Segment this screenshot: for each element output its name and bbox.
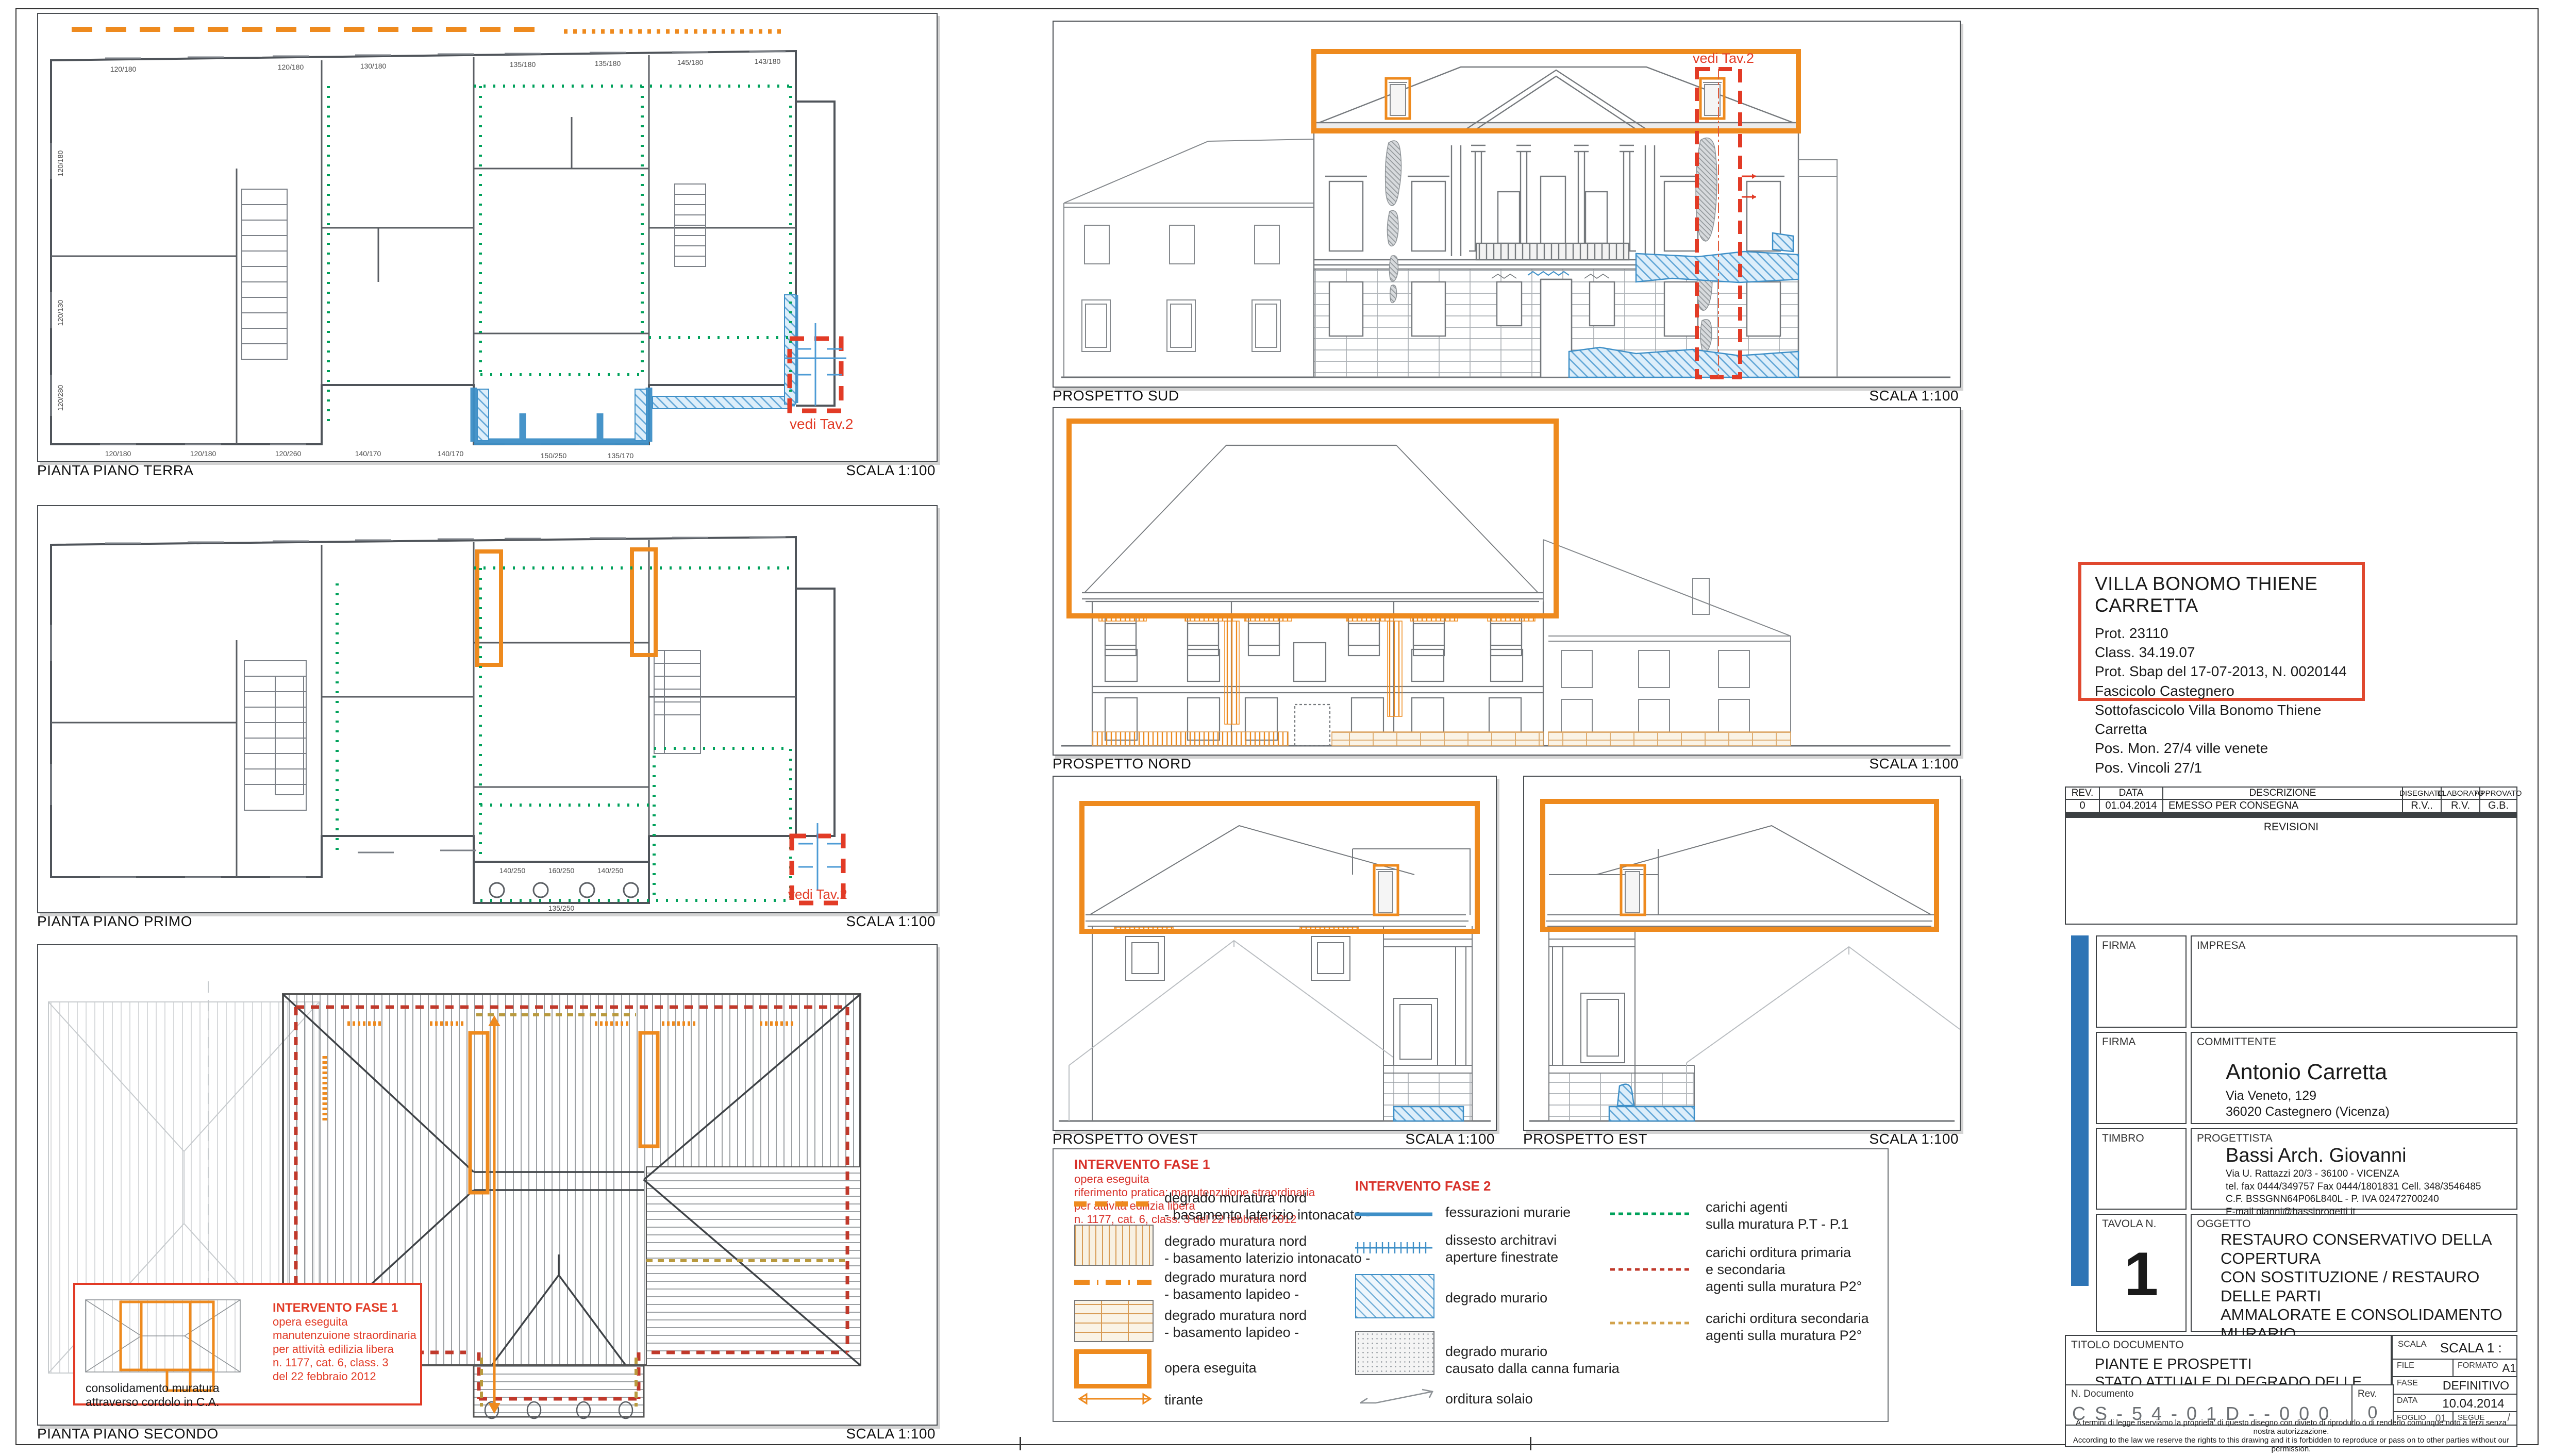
red-dashed-line-icon [1610, 1266, 1693, 1273]
svg-text:120/180: 120/180 [278, 63, 304, 71]
disclaimer-en: According to the law we reserve the righ… [2066, 1436, 2516, 1453]
plan-scale: SCALA 1:100 [846, 913, 936, 930]
rev-cell: G.B. [2480, 800, 2516, 813]
legend-item-label: degrado muratura nord - basamento lateri… [1164, 1190, 1370, 1224]
panel-prospetto-est [1523, 776, 1961, 1131]
elevation-title: PROSPETTO NORD [1053, 756, 1191, 772]
legend-item-label: orditura solaio [1445, 1391, 1533, 1408]
legend-item-label: tirante [1164, 1392, 1203, 1409]
firma-label: FIRMA [2097, 1033, 2185, 1051]
svg-text:120/180: 120/180 [110, 65, 137, 73]
progettista-cell: PROGETTISTA Bassi Arch. Giovanni Via U. … [2191, 1128, 2517, 1210]
consolidamento-note: consolidamento muratura attraverso cordo… [86, 1381, 256, 1409]
info-box-lines: Prot. 23110 Class. 34.19.07 Prot. Sbap d… [2095, 624, 2348, 777]
revisions-footer: REVISIONI [2066, 818, 2516, 836]
fold-mark [1530, 1437, 1531, 1450]
svg-text:140/170: 140/170 [355, 449, 381, 458]
svg-text:143/180: 143/180 [755, 57, 781, 65]
green-dashed-line-icon [1610, 1210, 1693, 1217]
drawing-pianta-piano-primo: vedi Tav.2 140/250 160/250 140/250 135/2… [38, 506, 937, 912]
tavola-label: TAVOLA N. [2097, 1215, 2185, 1233]
timbro-label: TIMBRO [2097, 1129, 2185, 1148]
svg-text:120/180: 120/180 [190, 449, 216, 458]
rev-header: DESCRIZIONE [2163, 788, 2403, 800]
revision-table: REV. DATA DESCRIZIONE DISEGNATO ELABORAT… [2065, 786, 2517, 925]
inset-fase1-lines: opera eseguita manutenzuione straordinar… [273, 1315, 417, 1383]
svg-text:135/180: 135/180 [510, 60, 536, 69]
firma-label: FIRMA [2097, 936, 2185, 955]
disclaimer-cell: A termini di legge riserviamo la proprie… [2065, 1425, 2517, 1447]
rev-header: DATA [2100, 788, 2163, 800]
inset-fase1-text: INTERVENTO FASE 1 opera eseguita manuten… [273, 1301, 417, 1383]
label-prospetto-nord: PROSPETTO NORD SCALA 1:100 [1053, 756, 1959, 772]
rev-cell: R.V.. [2403, 800, 2442, 813]
legend-item-label: carichi agenti sulla muratura P.T - P.1 [1706, 1199, 1849, 1233]
orange-dashdot-line-icon [1074, 1277, 1152, 1287]
drawing-prospetto-est [1524, 777, 1960, 1130]
svg-text:140/250: 140/250 [499, 866, 526, 875]
svg-text:140/170: 140/170 [438, 449, 464, 458]
elevation-scale: SCALA 1:100 [1869, 756, 1959, 772]
oggetto-cell: OGGETTO RESTAURO CONSERVATIVO DELLA COPE… [2191, 1214, 2517, 1332]
blue-tick-line-icon [1355, 1240, 1432, 1256]
impresa-label: IMPRESA [2192, 936, 2516, 955]
fase-value: DEFINITIVO [2443, 1379, 2509, 1393]
legend-item-label: degrado muratura nord - basamento lapide… [1164, 1269, 1307, 1303]
drawing-prospetto-sud: vedi Tav.2 [1054, 22, 1960, 387]
panel-pianta-piano-terra: 120/180 120/180 130/180 135/180 135/180 … [37, 13, 938, 462]
plan-title: PIANTA PIANO TERRA [37, 462, 194, 479]
committente-cell: COMMITTENTE Antonio Carretta Via Veneto,… [2191, 1032, 2517, 1124]
hatch-brick-box-icon [1074, 1300, 1154, 1342]
svg-text:135/250: 135/250 [548, 904, 575, 912]
blue-hatch-box-icon [1355, 1274, 1434, 1318]
scala-cell: SCALA SCALA 1 : 100 [2392, 1335, 2517, 1361]
formato-value: A1 [2502, 1360, 2523, 1375]
svg-text:120/260: 120/260 [275, 449, 302, 458]
data-value: 10.04.2014 [2442, 1397, 2504, 1411]
legend-item-label: degrado murario [1445, 1290, 1547, 1307]
svg-text:150/250: 150/250 [541, 451, 567, 460]
svg-text:135/170: 135/170 [608, 451, 634, 460]
label-prospetto-est: PROSPETTO EST SCALA 1:100 [1523, 1131, 1959, 1147]
plan-scale: SCALA 1:100 [846, 462, 936, 479]
label-prospetto-ovest: PROSPETTO OVEST SCALA 1:100 [1053, 1131, 1495, 1147]
rev-cell: EMESSO PER CONSEGNA [2163, 800, 2403, 813]
drawing-prospetto-nord [1054, 408, 1960, 755]
panel-prospetto-sud: vedi Tav.2 [1053, 21, 1961, 388]
svg-text:120/180: 120/180 [56, 150, 64, 176]
svg-text:135/180: 135/180 [595, 59, 621, 68]
legend-fase2-title: INTERVENTO FASE 2 [1355, 1178, 1491, 1194]
tavola-cell: TAVOLA N. 1 [2096, 1214, 2187, 1332]
vedi-tav2-label: vedi Tav.2 [788, 886, 847, 902]
legend-item-label: carichi orditura primaria e secondaria a… [1706, 1244, 1862, 1295]
legend-item-label: dissesto architravi aperture finestrate [1445, 1232, 1558, 1266]
fase-label: FASE [2393, 1377, 2422, 1393]
oggetto-label: OGGETTO [2192, 1215, 2516, 1230]
legend-item-label: opera eseguita [1164, 1360, 1257, 1377]
documento-label: N. Documento [2066, 1385, 2352, 1403]
tavola-number: 1 [2097, 1239, 2185, 1310]
rev-cell: 01.04.2014 [2100, 800, 2163, 813]
committente-lines: Via Veneto, 129 36020 Castegnero (Vicenz… [2226, 1088, 2516, 1120]
legend-item-label: degrado murario causato dalla canna fuma… [1445, 1343, 1620, 1377]
progettista-name: Bassi Arch. Giovanni [2226, 1145, 2516, 1167]
panel-prospetto-ovest [1053, 776, 1497, 1131]
data-label: DATA [2393, 1395, 2422, 1411]
panel-prospetto-nord [1053, 407, 1961, 756]
solaio-arrow-icon [1355, 1387, 1438, 1406]
committente-name: Antonio Carretta [2226, 1060, 2516, 1085]
rev-header: DISEGNATO [2403, 788, 2442, 800]
elevation-title: PROSPETTO SUD [1053, 388, 1179, 404]
disclaimer-it: A termini di legge riserviamo la proprie… [2066, 1418, 2516, 1436]
label-pianta-piano-terra: PIANTA PIANO TERRA SCALA 1:100 [37, 462, 936, 479]
data-cell: DATA 10.04.2014 [2392, 1394, 2517, 1413]
timbro-cell: TIMBRO [2096, 1128, 2187, 1210]
inset-fase1-title: INTERVENTO FASE 1 [273, 1301, 417, 1315]
plan-scale: SCALA 1:100 [846, 1426, 936, 1442]
oggetto-lines: RESTAURO CONSERVATIVO DELLA COPERTURA CO… [2221, 1230, 2516, 1343]
blue-line-icon [1355, 1210, 1432, 1218]
plan-title: PIANTA PIANO SECONDO [37, 1426, 219, 1442]
fase-cell: FASE DEFINITIVO [2392, 1376, 2517, 1396]
panel-pianta-piano-secondo: consolidamento muratura attraverso cordo… [37, 944, 938, 1426]
fold-mark [1020, 1437, 1021, 1450]
vedi-tav2-label: vedi Tav.2 [790, 416, 853, 432]
legend-fase1-title: INTERVENTO FASE 1 [1074, 1157, 1332, 1173]
elevation-title: PROSPETTO OVEST [1053, 1131, 1198, 1147]
firma-committente-cell: FIRMA [2096, 1032, 2187, 1124]
legend-panel: INTERVENTO FASE 1 opera eseguita riferim… [1053, 1148, 1889, 1422]
svg-text:130/180: 130/180 [360, 62, 387, 70]
drawing-prospetto-ovest [1054, 777, 1496, 1130]
hatch-vertical-box-icon [1074, 1225, 1154, 1266]
elevation-title: PROSPETTO EST [1523, 1131, 1647, 1147]
titolo-cell: TITOLO DOCUMENTO PIANTE E PROSPETTI STAT… [2065, 1335, 2392, 1386]
label-pianta-piano-secondo: PIANTA PIANO SECONDO SCALA 1:100 [37, 1426, 936, 1442]
progettista-lines: Via U. Rattazzi 20/3 - 36100 - VICENZA t… [2226, 1168, 2516, 1219]
drawing-pianta-piano-terra: 120/180 120/180 130/180 135/180 135/180 … [38, 14, 937, 461]
legend-item-label: carichi orditura secondaria agenti sulla… [1706, 1310, 1869, 1344]
formato-label: FORMATO [2454, 1360, 2502, 1375]
svg-text:120/180: 120/180 [105, 449, 131, 458]
elevation-scale: SCALA 1:100 [1869, 388, 1959, 404]
progettista-label: PROGETTISTA [2192, 1129, 2516, 1145]
titolo-label: TITOLO DOCUMENTO [2066, 1336, 2391, 1354]
tan-dashed-line-icon [1610, 1319, 1693, 1327]
plan-title: PIANTA PIANO PRIMO [37, 913, 192, 930]
dim-labels: 140/250 160/250 140/250 135/250 [499, 866, 624, 912]
formato-cell: FORMATO A1 [2452, 1359, 2517, 1378]
svg-text:160/250: 160/250 [548, 866, 575, 875]
svg-text:140/250: 140/250 [597, 866, 624, 875]
orange-outline-box-icon [1074, 1349, 1152, 1388]
rev-header: REV. [2066, 788, 2100, 800]
info-box: VILLA BONOMO THIENE CARRETTA Prot. 23110… [2078, 562, 2365, 701]
impresa-cell: IMPRESA [2191, 935, 2517, 1028]
rev-header: APPROVATO [2480, 788, 2516, 800]
svg-text:120/130: 120/130 [56, 299, 64, 326]
legend-item-label: fessurazioni murarie [1445, 1204, 1571, 1221]
file-cell: FILE [2392, 1359, 2455, 1378]
svg-text:120/280: 120/280 [56, 384, 64, 411]
drawing-pianta-piano-secondo [38, 945, 937, 1425]
orange-dashed-line-icon [1074, 1199, 1152, 1209]
rev-label: Rev. [2352, 1385, 2393, 1403]
drawing-sheet: { "plans": [ {"title": "PIANTA PIANO TER… [0, 0, 2553, 1456]
legend-item-label: degrado muratura nord - basamento lapide… [1164, 1307, 1307, 1341]
rev-cell: 0 [2066, 800, 2100, 813]
rev-cell: R.V. [2442, 800, 2480, 813]
titleblock-blue-bar [2071, 935, 2089, 1286]
gray-dot-box-icon [1355, 1331, 1434, 1375]
vedi-tav2-label: vedi Tav.2 [1693, 51, 1754, 66]
firma-impresa-cell: FIRMA [2096, 935, 2187, 1028]
elevation-scale: SCALA 1:100 [1869, 1131, 1959, 1147]
svg-text:145/180: 145/180 [677, 58, 704, 66]
legend-item-label: degrado muratura nord - basamento lateri… [1164, 1233, 1370, 1267]
info-box-title: VILLA BONOMO THIENE CARRETTA [2095, 573, 2348, 616]
file-label: FILE [2393, 1360, 2454, 1372]
double-arrow-icon [1071, 1392, 1159, 1406]
elevation-scale: SCALA 1:100 [1405, 1131, 1495, 1147]
label-prospetto-sud: PROSPETTO SUD SCALA 1:100 [1053, 388, 1959, 404]
committente-label: COMMITTENTE [2192, 1033, 2516, 1051]
label-pianta-piano-primo: PIANTA PIANO PRIMO SCALA 1:100 [37, 913, 936, 930]
panel-pianta-piano-primo: vedi Tav.2 140/250 160/250 140/250 135/2… [37, 505, 938, 913]
